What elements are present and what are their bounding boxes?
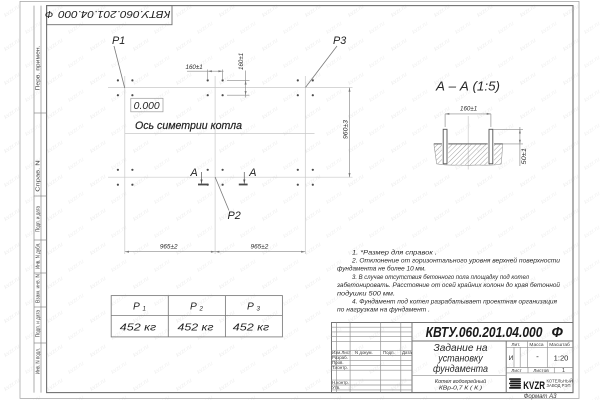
svg-text:452 кг: 452 кг (120, 322, 157, 333)
svg-text:960±3: 960±3 (342, 120, 349, 139)
svg-text:ЗАВОД РЭП: ЗАВОД РЭП (547, 383, 571, 388)
svg-text:Перв. примен.: Перв. примен. (36, 46, 42, 91)
svg-text:Р3: Р3 (333, 35, 346, 47)
svg-text:Р: Р (133, 301, 140, 312)
svg-text:Подп. и дата: Подп. и дата (36, 310, 42, 338)
svg-text:Лит.: Лит. (511, 342, 520, 348)
svg-text:Подп.: Подп. (383, 350, 395, 355)
svg-text:452 кг: 452 кг (178, 322, 214, 333)
svg-text:А: А (248, 167, 256, 179)
svg-text:забетонировать. Расстояние от: забетонировать. Расстояние от осей крайн… (336, 281, 560, 289)
svg-text:0.000: 0.000 (134, 101, 160, 112)
svg-text:фундамента не более 10 мм.: фундамента не более 10 мм. (337, 265, 426, 273)
svg-text:Масса: Масса (529, 342, 544, 348)
svg-text:Р2: Р2 (228, 210, 241, 222)
svg-text:Р1: Р1 (112, 35, 125, 47)
svg-text:Ось симетрии котла: Ось симетрии котла (135, 120, 242, 132)
svg-text:2. Отклонение от горизонтально: 2. Отклонение от горизонтального уровня … (351, 257, 560, 265)
svg-text:Утв.: Утв. (332, 385, 340, 390)
svg-text:4. Фундамент под котел разраба: 4. Фундамент под котел разрабатывает про… (352, 298, 557, 306)
svg-text:Подп. и дата: Подп. и дата (36, 206, 42, 232)
svg-text:Инв. N подл.: Инв. N подл. (36, 348, 42, 374)
svg-text:2: 2 (199, 306, 204, 313)
svg-text:3. В случае отсутствия бетонно: 3. В случае отсутствия бетонного пола пл… (352, 273, 529, 281)
svg-text:965±2: 965±2 (160, 244, 178, 251)
svg-text:И: И (509, 355, 514, 362)
svg-text:Инв. N дубл.: Инв. N дубл. (36, 243, 42, 269)
svg-text:-: - (536, 352, 539, 361)
svg-text:КВТУ.060.201.04.000: КВТУ.060.201.04.000 (426, 325, 543, 341)
svg-text:Дата: Дата (402, 350, 412, 355)
svg-text:50±1: 50±1 (521, 148, 528, 165)
svg-text:160±1: 160±1 (186, 64, 203, 71)
svg-text:1. *Размер для справок .: 1. *Размер для справок . (352, 248, 437, 256)
svg-text:Справ. N: Справ. N (36, 160, 42, 192)
svg-text:1:20: 1:20 (554, 353, 569, 362)
svg-text:KVZR: KVZR (523, 380, 545, 392)
svg-text:подушки 500 мм.: подушки 500 мм. (337, 289, 395, 297)
svg-text:Р: Р (190, 301, 197, 312)
svg-text:А – А (1:5): А – А (1:5) (435, 78, 500, 93)
svg-text:Р: Р (247, 301, 254, 312)
svg-text:Т.контр.: Т.контр. (332, 365, 348, 370)
svg-text:Лист: Лист (511, 368, 522, 374)
svg-text:КВр-0,7 К ( К ): КВр-0,7 К ( К ) (439, 386, 482, 392)
svg-text:Формат А3: Формат А3 (524, 394, 557, 400)
svg-text:КВТУ.060.201.04.000: КВТУ.060.201.04.000 (58, 8, 171, 19)
svg-text:Котел водогрейный: Котел водогрейный (435, 378, 487, 385)
svg-text:965±2: 965±2 (251, 244, 269, 251)
svg-text:Взам. инв. N: Взам. инв. N (36, 274, 42, 303)
svg-text:N докум.: N докум. (355, 350, 373, 355)
svg-text:160±1: 160±1 (238, 53, 245, 70)
svg-text:по нагрузкам на фундамент .: по нагрузкам на фундамент . (337, 306, 430, 314)
svg-text:1: 1 (562, 368, 565, 374)
svg-text:Ф: Ф (45, 8, 53, 19)
svg-text:160±1: 160±1 (460, 106, 477, 113)
svg-text:Масштаб: Масштаб (549, 342, 570, 348)
svg-text:Ф: Ф (552, 325, 564, 341)
svg-text:А: А (190, 167, 198, 179)
svg-text:фундамента: фундамента (433, 363, 488, 375)
svg-text:452 кг: 452 кг (233, 322, 270, 333)
svg-text:1: 1 (143, 306, 146, 313)
svg-text:Листов: Листов (533, 368, 549, 374)
svg-text:3: 3 (257, 306, 261, 313)
